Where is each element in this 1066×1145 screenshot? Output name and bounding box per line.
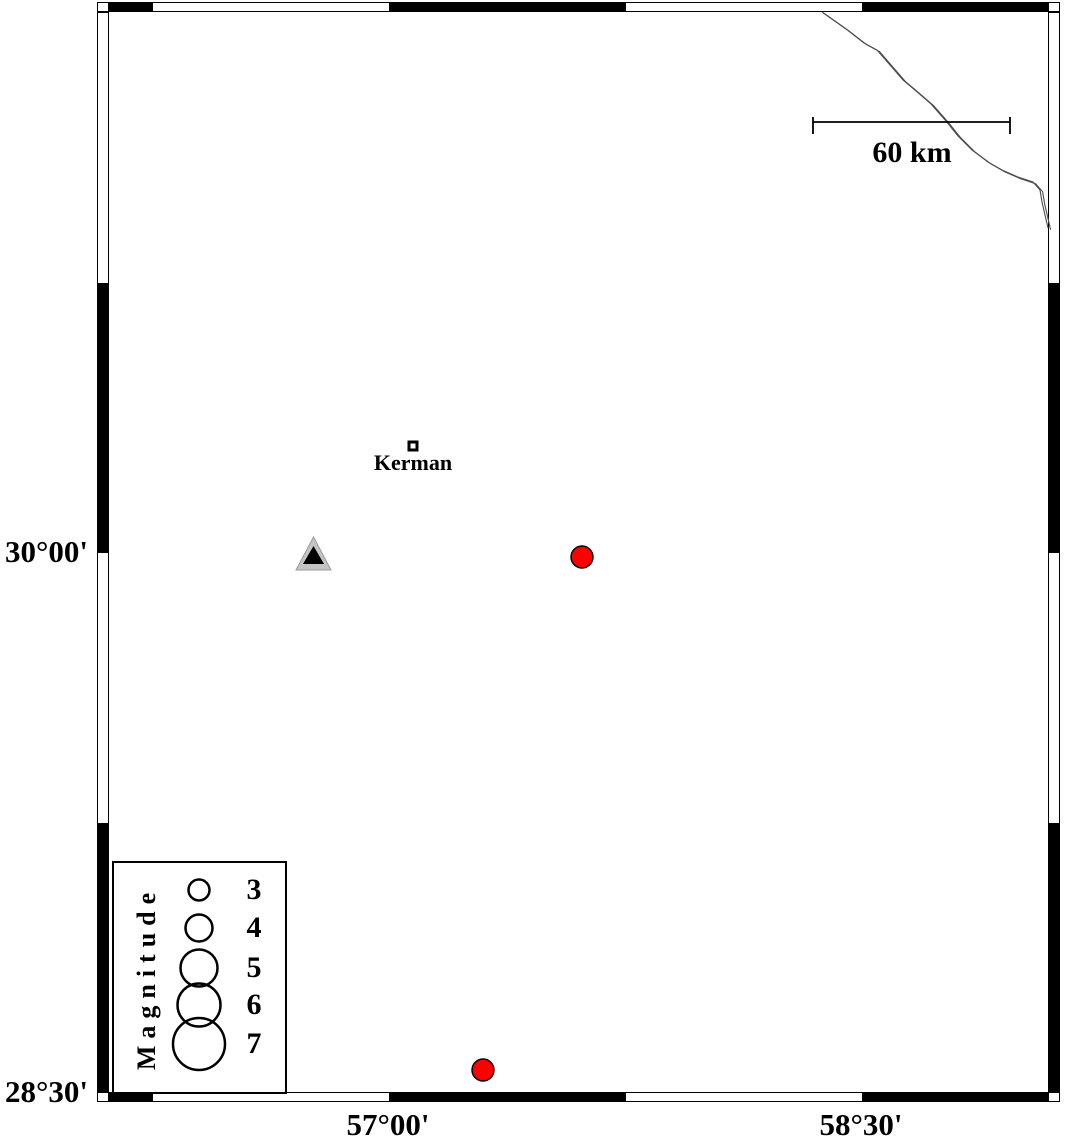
legend-circle-m6 bbox=[178, 984, 221, 1027]
legend-circle-m4 bbox=[186, 915, 213, 942]
legend-value-7: 7 bbox=[232, 1025, 276, 1063]
map-canvas: 30°00' 28°30' 57°00' 58°30' 60 km Kerman… bbox=[0, 0, 1066, 1145]
legend-box: Magnitude 3 4 5 6 7 bbox=[112, 861, 287, 1094]
scale-bar bbox=[813, 117, 1010, 134]
city-label: Kerman bbox=[343, 451, 483, 475]
legend-circle-m5 bbox=[181, 950, 218, 987]
scale-bar-label: 60 km bbox=[832, 136, 992, 170]
earthquake-marker-1 bbox=[571, 546, 593, 568]
legend-value-5: 5 bbox=[232, 949, 276, 987]
earthquake-marker-2 bbox=[472, 1059, 494, 1081]
legend-value-4: 4 bbox=[232, 909, 276, 947]
legend-value-3: 3 bbox=[232, 871, 276, 909]
city-marker-square-icon bbox=[409, 442, 417, 450]
road-line-icon bbox=[822, 12, 1051, 230]
station-triangle-icon bbox=[296, 537, 331, 570]
legend-circle-m3 bbox=[189, 880, 210, 901]
legend-value-6: 6 bbox=[232, 986, 276, 1024]
